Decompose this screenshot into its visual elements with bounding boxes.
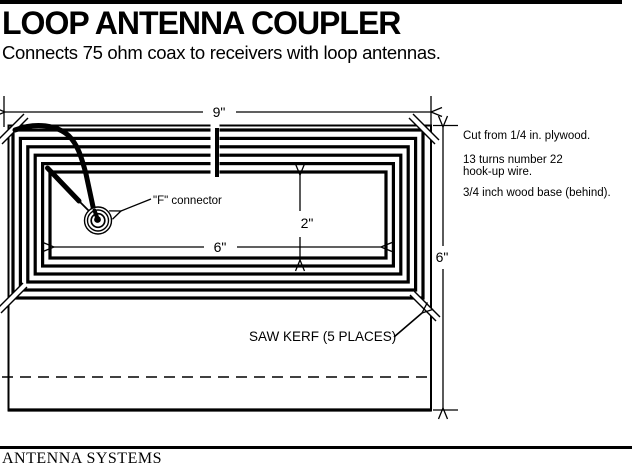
coupler-diagram: 9" 6" 2" 6" "F" connector SAW KERF (5 PL… [0,0,632,467]
dimension-inner-height-label: 2" [301,215,314,231]
dimension-overall-height-label: 6" [436,249,449,265]
saw-kerf-leader-line [394,313,422,337]
note-plywood: Cut from 1/4 in. plywood. [463,130,590,142]
note-wire: hook-up wire. [463,166,532,178]
saw-kerf-bottom-right [410,291,440,321]
dimension-overall-width-label: 9" [213,104,226,120]
saw-kerf-top-center [211,119,220,178]
dimension-overall-height [433,126,458,411]
construction-notes: Cut from 1/4 in. plywood. 13 turns numbe… [463,130,611,199]
connector-leader-line [121,199,151,211]
note-base: 3/4 inch wood base (behind). [463,187,611,199]
connector-label: "F" connector [153,195,222,207]
page: LOOP ANTENNA COUPLER Connects 75 ohm coa… [0,0,632,467]
dimension-inner-width-label: 6" [214,239,227,255]
f-connector [85,207,112,234]
saw-kerf-label: SAW KERF (5 PLACES) [249,329,396,344]
note-turns: 13 turns number 22 [463,154,563,166]
footer-rule [0,446,632,449]
footer-brand: ANTENNA SYSTEMS [2,450,162,467]
